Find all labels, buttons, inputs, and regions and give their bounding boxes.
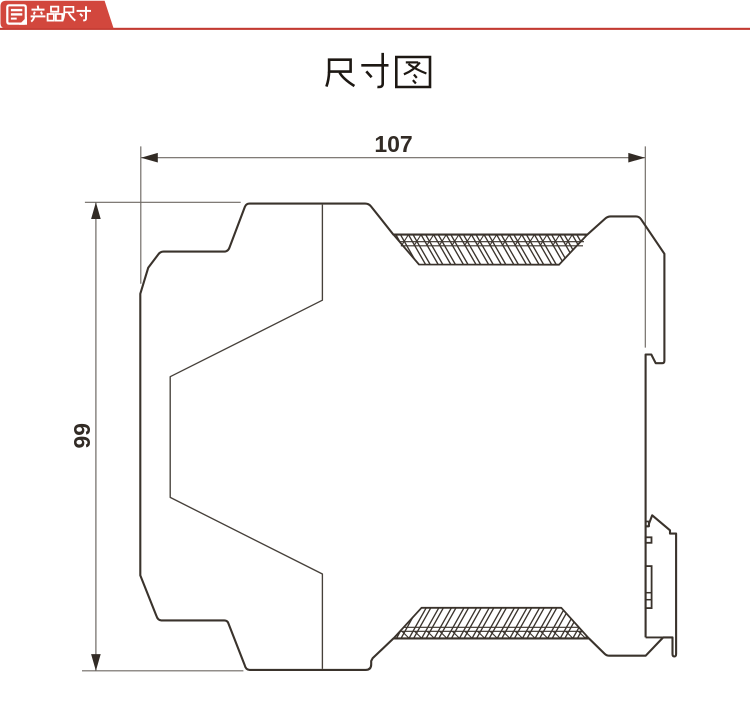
svg-text:107: 107 — [374, 131, 412, 157]
svg-text:99: 99 — [69, 423, 95, 449]
